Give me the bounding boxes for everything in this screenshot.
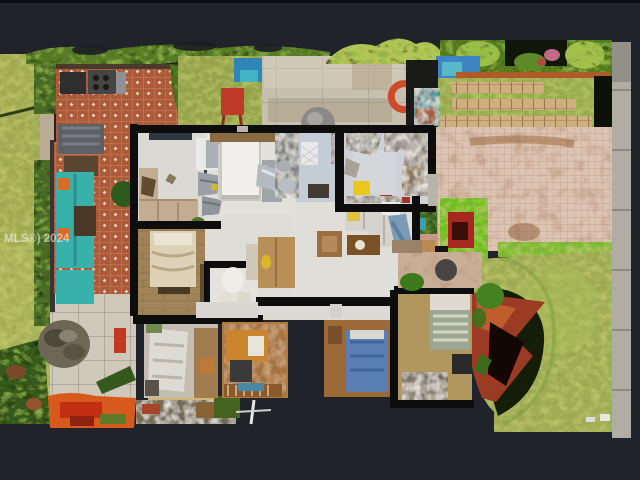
- svg-text:MLS®) 2024: MLS®) 2024: [4, 233, 70, 245]
